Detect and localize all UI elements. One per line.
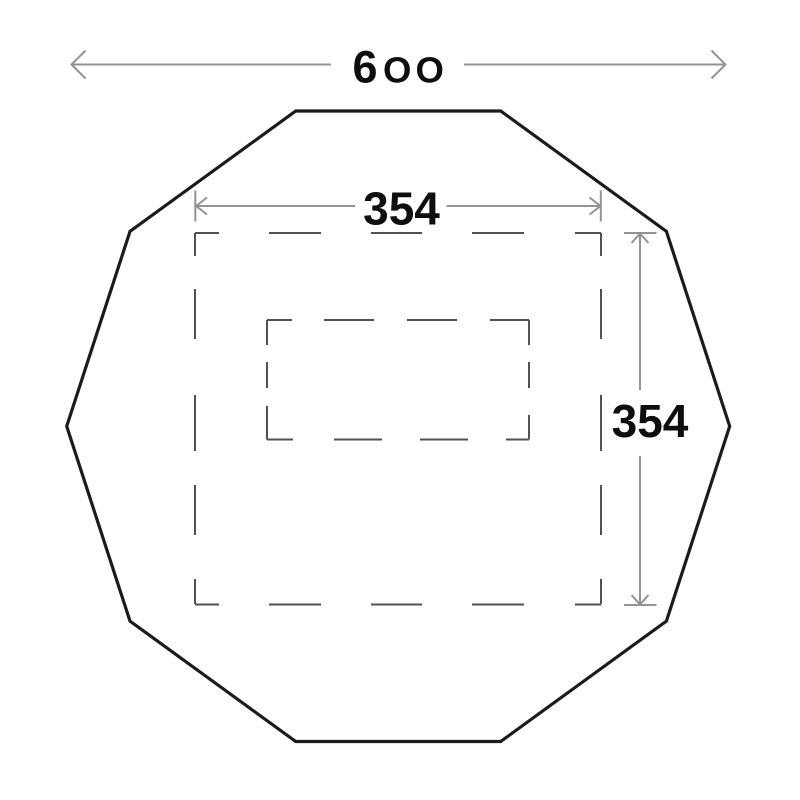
svg-text:6OO: 6OO: [353, 42, 444, 93]
svg-text:354: 354: [363, 183, 440, 235]
svg-text:354: 354: [612, 395, 689, 447]
